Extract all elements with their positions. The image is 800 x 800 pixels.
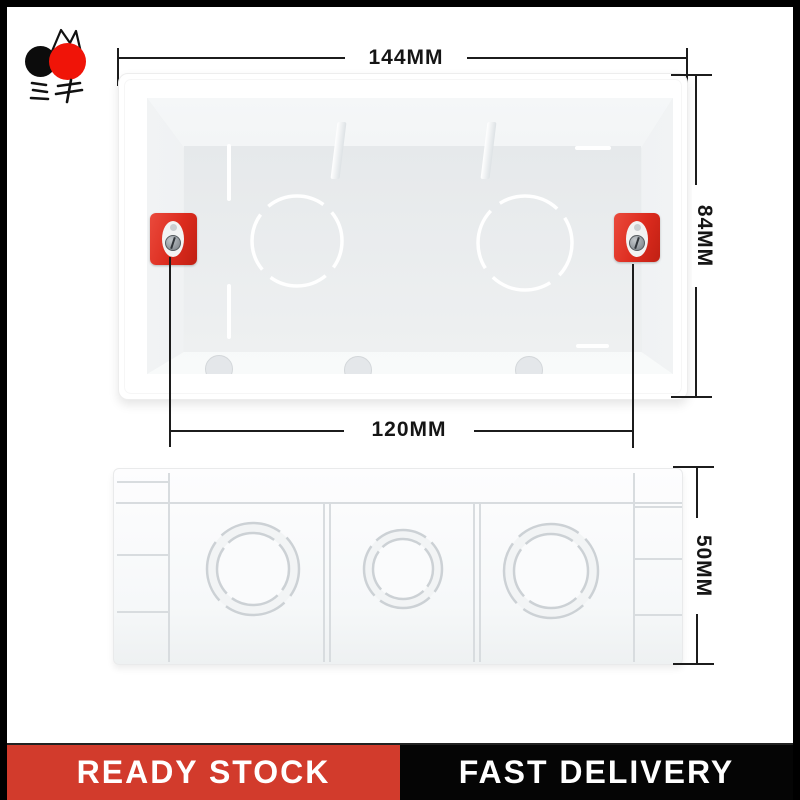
knockout-ring-right bbox=[504, 524, 598, 618]
screw-slot bbox=[634, 237, 640, 249]
product-listing-image: ミキ 144MM bbox=[0, 0, 800, 800]
box-front-open-view bbox=[118, 73, 688, 400]
box-cavity bbox=[147, 98, 673, 374]
dim-50-cap-bottom bbox=[673, 663, 714, 665]
divider-fin-right bbox=[481, 122, 497, 179]
screw-boss-middle bbox=[344, 356, 372, 374]
knockout-circle-right bbox=[478, 196, 572, 290]
cavity-bottom-wall bbox=[147, 98, 673, 374]
cavity-top-wall bbox=[147, 98, 673, 374]
mounting-clamp-left bbox=[150, 213, 197, 265]
cavity-left-wall bbox=[147, 98, 673, 374]
frame-border-left bbox=[0, 0, 7, 800]
knockout-ring-middle bbox=[364, 530, 442, 608]
logo-red-circle-icon bbox=[49, 43, 86, 80]
dim-label-144mm: 144MM bbox=[345, 46, 467, 70]
fast-delivery-badge: FAST DELIVERY bbox=[400, 745, 793, 800]
box-back-view bbox=[113, 468, 683, 665]
clamp-pin bbox=[634, 224, 641, 231]
logo-kana-glyphs bbox=[28, 78, 88, 104]
clamp-screw bbox=[629, 235, 645, 251]
clamp-pin bbox=[170, 224, 177, 231]
dim-label-120mm: 120MM bbox=[344, 418, 474, 442]
ready-stock-badge: READY STOCK bbox=[7, 745, 400, 800]
frame-border-top bbox=[0, 0, 800, 7]
knockout-ring-left bbox=[207, 523, 299, 615]
dim-84-cap-top bbox=[671, 74, 712, 76]
divider-fin-left bbox=[331, 122, 347, 179]
back-knockout-rings bbox=[114, 469, 684, 666]
screw-boss-left bbox=[205, 355, 233, 374]
logo-text: ミキ bbox=[10, 10, 11, 11]
knockout-overlay bbox=[119, 74, 689, 401]
frame-border-right bbox=[793, 0, 800, 800]
clamp-screw bbox=[165, 235, 181, 251]
dim-120-extension-right bbox=[632, 264, 634, 448]
clamp-hole bbox=[626, 221, 648, 257]
clamp-hole bbox=[162, 221, 184, 257]
cavity-back-wall bbox=[184, 146, 641, 352]
knockout-circle-left bbox=[252, 196, 342, 286]
mounting-clamp-right bbox=[614, 213, 660, 262]
dim-label-50mm: 50MM bbox=[691, 518, 715, 614]
brand-logo: ミキ bbox=[10, 10, 110, 110]
screw-slot bbox=[170, 237, 176, 249]
dim-84-cap-bottom bbox=[671, 396, 712, 398]
promo-banner: READY STOCK FAST DELIVERY bbox=[7, 743, 793, 800]
screw-boss-right bbox=[515, 356, 543, 374]
dim-120-extension-left bbox=[169, 257, 171, 447]
dim-50-cap-top bbox=[673, 466, 714, 468]
dim-label-84mm: 84MM bbox=[692, 185, 716, 287]
cavity-right-wall bbox=[147, 98, 673, 374]
